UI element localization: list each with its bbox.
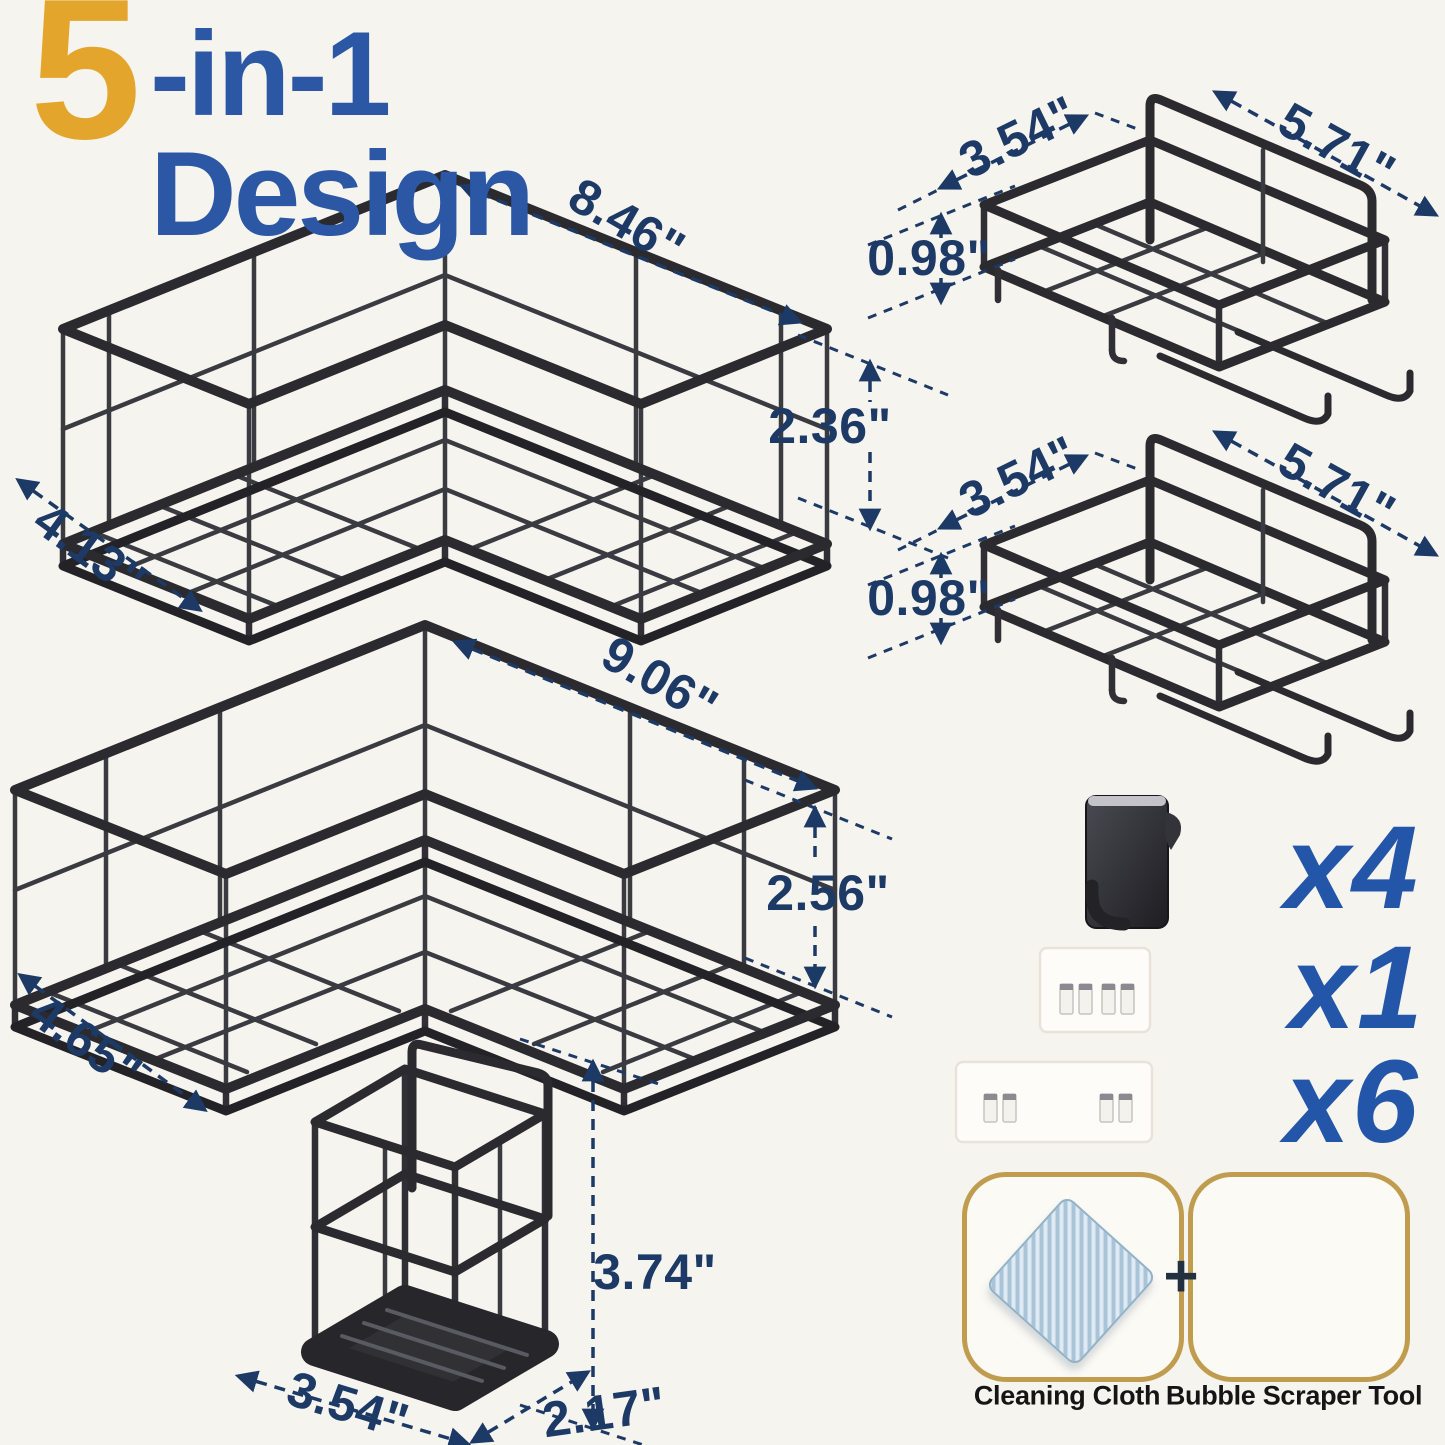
dim-shelf-large-height: 2.56" <box>766 864 890 922</box>
page-title: 5 -in-1 Design <box>0 0 800 170</box>
dim-shelf-small-height: 2.36" <box>768 397 892 455</box>
cloth-caption: Cleaning Cloth <box>974 1381 1160 1412</box>
dim-basket-top-height: 0.98" <box>867 229 991 287</box>
adhesive-hook-art <box>1086 796 1181 928</box>
product-infographic: 5 -in-1 Design 8.46" 2.36" 4.13" 9.06" 2… <box>0 0 1445 1445</box>
utensil-holder-art <box>315 1044 548 1397</box>
plus-icon: + <box>1163 1242 1198 1311</box>
dim-basket-mid-height: 0.98" <box>867 569 991 627</box>
hook-count: x4 <box>1284 800 1419 936</box>
strip-large-count: x6 <box>1284 1034 1419 1170</box>
scraper-caption: Bubble Scraper Tool <box>1166 1381 1422 1412</box>
adhesive-strip-large-art <box>956 1062 1152 1142</box>
bubble-scraper-box <box>1188 1172 1410 1382</box>
title-number: 5 <box>30 0 141 170</box>
title-text: -in-1 Design <box>150 14 800 254</box>
adhesive-strip-small-art <box>1040 948 1150 1032</box>
dim-holder-height: 3.74" <box>593 1243 717 1301</box>
